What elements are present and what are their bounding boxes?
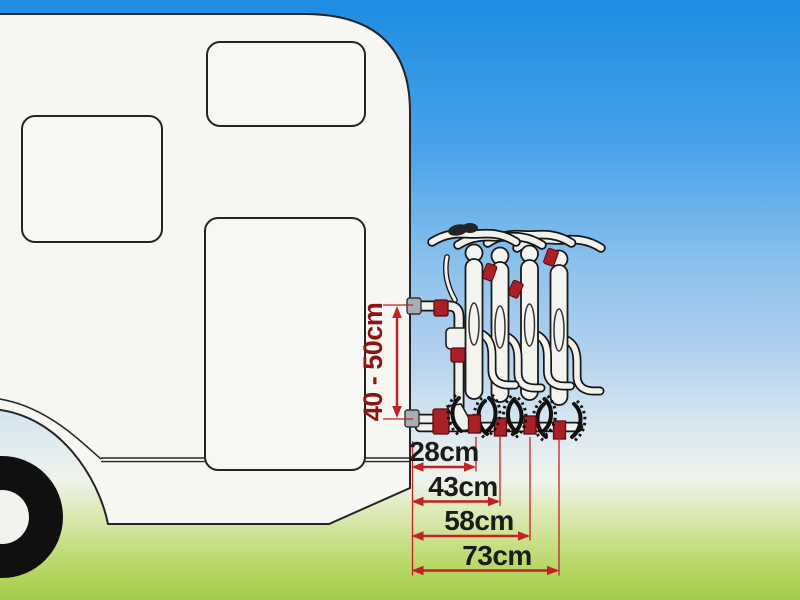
bike-rail-red-clamp (469, 415, 481, 433)
vertical-dimension-label: 40 - 50cm (358, 303, 388, 422)
caravan-window-top-right (207, 42, 365, 126)
rack-wall-pad-top (407, 298, 421, 314)
dimension-label-28cm: 28cm (409, 436, 479, 467)
dimension-label-73cm: 73cm (462, 540, 532, 571)
rack-red-clamp-bottom (433, 409, 449, 434)
dimension-label-58cm: 58cm (444, 505, 514, 536)
bike-grip-blob (462, 223, 478, 233)
rack-red-clamp-top (434, 300, 448, 316)
dimension-label-43cm: 43cm (428, 471, 498, 502)
bike-rail-red-clamp (554, 421, 566, 439)
caravan-rear-panel (205, 218, 365, 470)
diagram-canvas: 40 - 50cm 28cm 43cm 58cm (0, 0, 800, 600)
bike-rail-red-clamp (524, 416, 536, 434)
bike-fork (466, 259, 483, 399)
horizontal-dimension-28cm: 28cm (409, 436, 479, 472)
caravan-window-left (22, 116, 162, 242)
bike-carrier-diagram: 40 - 50cm 28cm 43cm 58cm (0, 0, 800, 600)
